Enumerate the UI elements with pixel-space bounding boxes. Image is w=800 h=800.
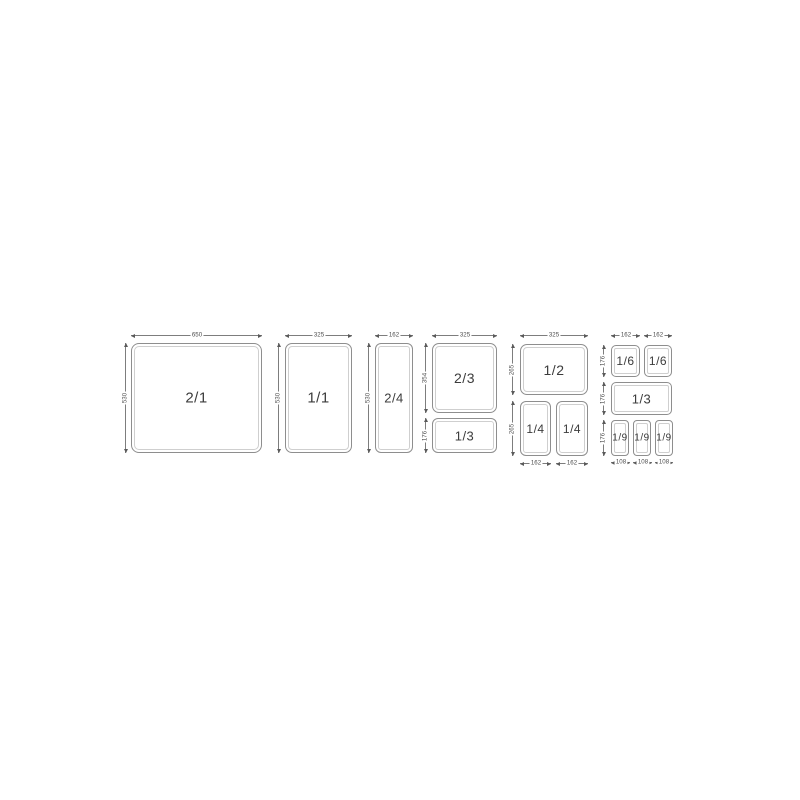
gn-box-1-6: 1/6 — [611, 345, 640, 377]
gn-box-1-9: 1/9 — [655, 420, 673, 456]
panel-gn-1-6-1-3-1-9: 1/61/61/31/91/91/91621621761761761081081… — [0, 0, 800, 800]
dim-label: 176 — [600, 355, 606, 368]
dim-label: 162 — [652, 332, 665, 338]
dim-label: 108 — [658, 459, 671, 465]
box-label: 1/9 — [634, 433, 649, 444]
box-label: 1/3 — [632, 391, 652, 406]
box-label: 1/9 — [612, 433, 627, 444]
box-label: 1/6 — [616, 354, 634, 368]
dim-arrow-left-icon — [611, 334, 615, 338]
dim-arrow-down-icon — [602, 411, 606, 415]
dim-arrow-up-icon — [602, 420, 606, 424]
gn-box-1-9: 1/9 — [633, 420, 651, 456]
dim-label: 108 — [614, 459, 627, 465]
dim-arrow-up-icon — [602, 382, 606, 386]
dim-label: 176 — [600, 432, 606, 445]
dim-label: 176 — [600, 392, 606, 405]
dim-arrow-right-icon — [636, 334, 640, 338]
dim-label: 108 — [636, 459, 649, 465]
gn-box-1-6: 1/6 — [644, 345, 672, 377]
dim-label: 162 — [619, 332, 632, 338]
dim-arrow-right-icon — [668, 334, 672, 338]
dim-arrow-left-icon — [644, 334, 648, 338]
gn-box-1-3: 1/3 — [611, 382, 672, 415]
gn-size-diagram: 2/16505301/13255302/41625302/31/33253541… — [0, 0, 800, 800]
dim-arrow-down-icon — [602, 452, 606, 456]
dim-arrow-down-icon — [602, 373, 606, 377]
box-label: 1/9 — [656, 433, 671, 444]
gn-box-1-9: 1/9 — [611, 420, 629, 456]
dim-arrow-up-icon — [602, 345, 606, 349]
box-label: 1/6 — [649, 354, 667, 368]
